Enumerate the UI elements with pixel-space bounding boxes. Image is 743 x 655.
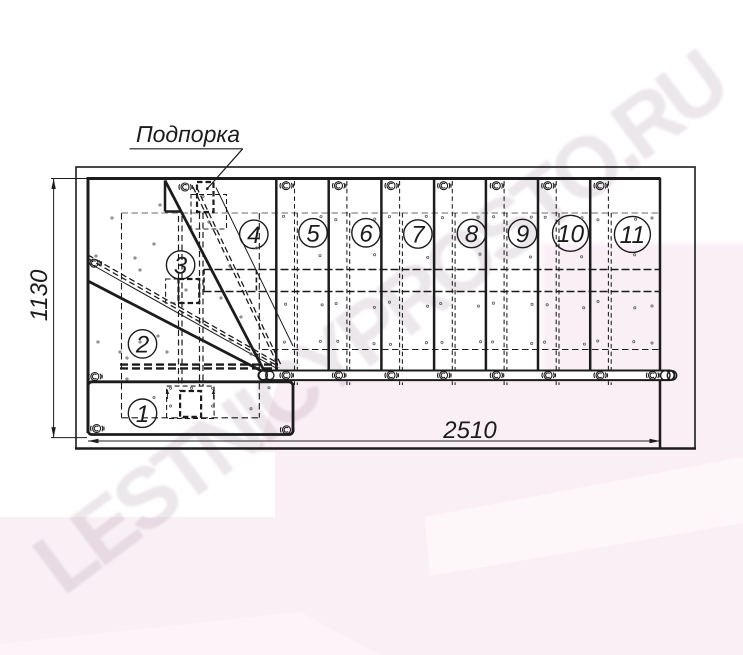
svg-text:8: 8 <box>465 221 479 248</box>
svg-text:11: 11 <box>620 222 645 249</box>
svg-text:5: 5 <box>306 220 320 247</box>
svg-text:1: 1 <box>136 401 149 428</box>
svg-text:Подпорка: Подпорка <box>136 121 240 147</box>
svg-text:10: 10 <box>557 221 585 248</box>
svg-text:1130: 1130 <box>26 269 53 321</box>
svg-text:2510: 2510 <box>442 417 497 444</box>
svg-text:4: 4 <box>247 222 260 249</box>
svg-text:6: 6 <box>359 220 373 247</box>
svg-text:7: 7 <box>411 222 426 249</box>
svg-text:9: 9 <box>516 221 529 248</box>
svg-text:2: 2 <box>135 332 149 359</box>
svg-text:3: 3 <box>174 253 188 280</box>
